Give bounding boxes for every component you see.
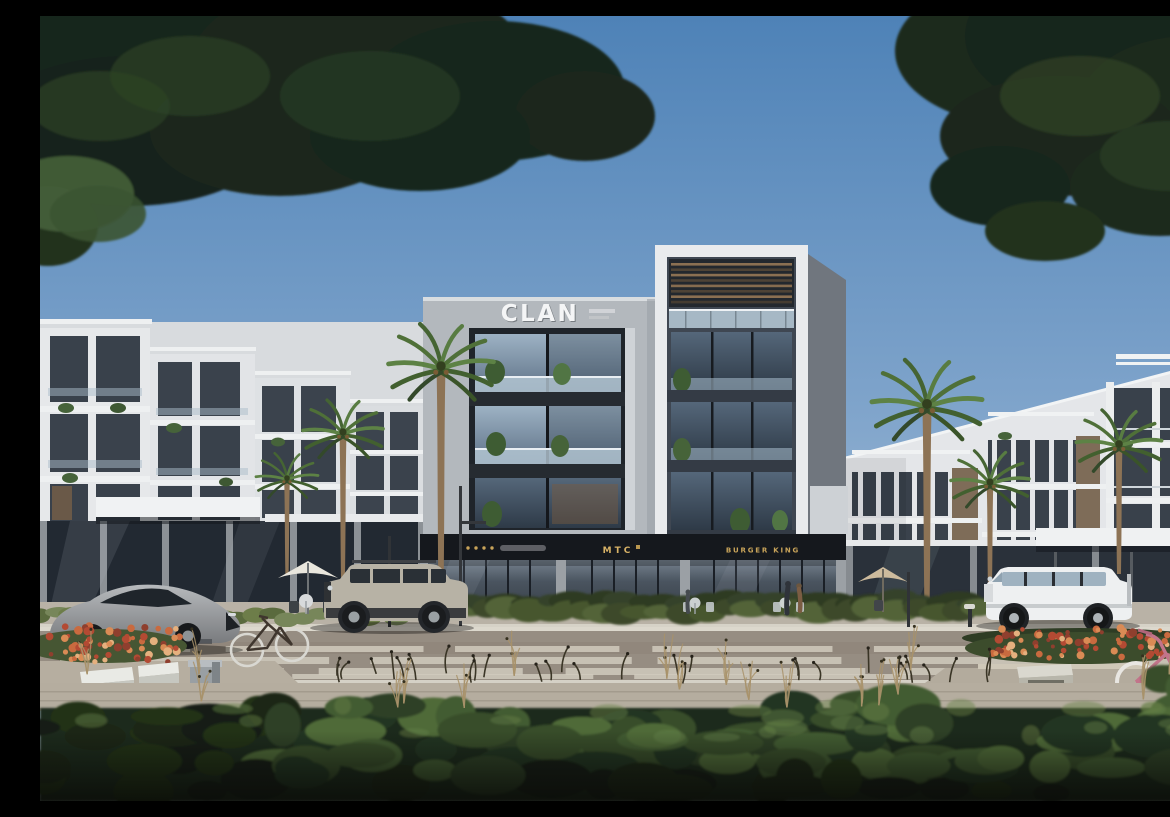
clan-sign-text: CLAN: [501, 301, 580, 327]
mtc-sign: MTC: [603, 546, 634, 556]
g-class-suv: [976, 567, 1140, 633]
bottom-vignette: [40, 731, 1170, 801]
burger-king-sign: BURGER KING: [726, 547, 800, 555]
architectural-render-photo: CLAN CLAN: [40, 16, 1170, 801]
rooftop-pergola: [669, 259, 794, 307]
right-row-canopy: [1036, 528, 1170, 546]
left-row-canopy: [96, 497, 260, 517]
